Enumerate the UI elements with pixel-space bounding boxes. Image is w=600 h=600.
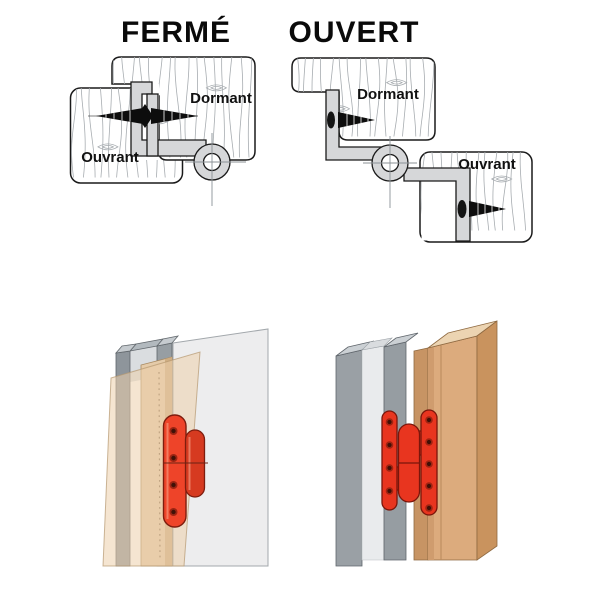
closed-title: FERMÉ (121, 15, 231, 49)
hinge-diagram-canvas: FERMÉ (0, 0, 600, 600)
closed-installation-illustration (103, 329, 268, 566)
open-dormant-label: Dormant (357, 86, 419, 103)
door-side-face (477, 321, 497, 560)
closed-ouvrant-label: Ouvrant (81, 149, 139, 166)
frame-channel-recess (362, 346, 384, 560)
closed-dormant-label: Dormant (190, 90, 252, 107)
open-ouvrant-label: Ouvrant (458, 156, 516, 173)
hinge-plate-frame-side (382, 411, 397, 510)
open-title: OUVERT (288, 16, 419, 49)
frame-plank-outer (336, 350, 362, 566)
closed-state-diagram: FERMÉ (71, 15, 256, 206)
hinge-diagram: FERMÉ (0, 0, 600, 600)
closed-dormant-hinge-leaf (147, 94, 158, 156)
open-installation-illustration (336, 321, 497, 566)
open-hinge (382, 410, 437, 515)
open-state-diagram: OUVERT (288, 16, 532, 242)
